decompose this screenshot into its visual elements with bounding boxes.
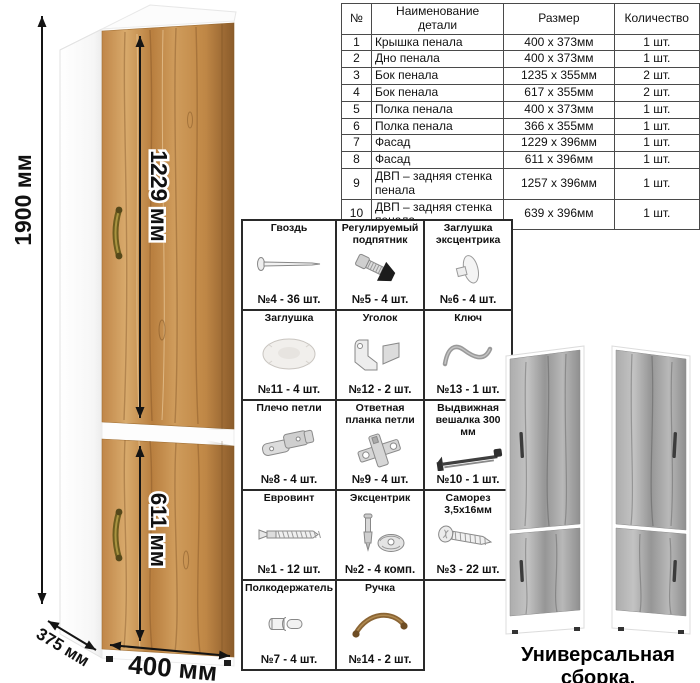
part-size: 639 x 396мм: [504, 199, 614, 230]
hardware-item: Ответная планка петли №9 - 4 шт.: [339, 403, 421, 487]
hardware-title: Ответная планка петли: [339, 403, 421, 427]
part-qty: 1 шт.: [614, 34, 699, 51]
part-size: 366 x 355мм: [504, 118, 614, 135]
nail-icon: [256, 235, 322, 294]
hardware-count: №4 - 36 шт.: [258, 294, 321, 307]
hinge-arm-icon: [258, 415, 320, 474]
hardware-title: Полкодержатель: [245, 583, 333, 595]
hardware-count: №12 - 2 шт.: [349, 384, 412, 397]
hardware-count: №5 - 4 шт.: [352, 294, 408, 307]
hardware-count: №11 - 4 шт.: [258, 384, 320, 397]
variant-cabinet-right: [612, 346, 690, 634]
hardware-item: Заглушка №11 - 4 шт.: [245, 313, 333, 397]
part-size: 1257 x 396мм: [504, 168, 614, 199]
part-name: Бок пенала: [371, 68, 503, 85]
hardware-title: Регулируемый подпятник: [339, 223, 421, 247]
hardware-item: Регулируемый подпятник №5 - 4 шт.: [339, 223, 421, 307]
hardware-count: №9 - 4 шт.: [352, 474, 408, 487]
part-size: 400 x 373мм: [504, 101, 614, 118]
header-size: Размер: [504, 4, 614, 35]
variant-cabinets: [496, 338, 700, 644]
table-row: 5Полка пенала400 x 373мм1 шт.: [342, 101, 700, 118]
part-num: 8: [342, 152, 372, 169]
table-row: 4Бок пенала617 x 355мм2 шт.: [342, 84, 700, 101]
hardware-item: Уголок №12 - 2 шт.: [339, 313, 421, 397]
hardware-item: Гвоздь №4 - 36 шт.: [245, 223, 333, 307]
hardware-title: Ручка: [365, 583, 395, 595]
cabinet-foot: [106, 656, 113, 662]
part-num: 5: [342, 101, 372, 118]
part-qty: 1 шт.: [614, 135, 699, 152]
hardware-item: Полкодержатель №7 - 4 шт.: [245, 583, 333, 667]
part-size: 400 x 373мм: [504, 34, 614, 51]
part-size: 617 x 355мм: [504, 84, 614, 101]
hardware-count: №13 - 1 шт.: [437, 384, 500, 397]
cam-lock-icon: [351, 505, 409, 564]
hardware-title: Эксцентрик: [350, 493, 410, 505]
hardware-count: №10 - 1 шт.: [437, 474, 500, 487]
hex-key-icon: [439, 325, 497, 384]
part-size: 1229 x 396мм: [504, 135, 614, 152]
header-name: Наименование детали: [371, 4, 503, 35]
part-size: 611 x 396мм: [504, 152, 614, 169]
part-num: 3: [342, 68, 372, 85]
table-row: 3Бок пенала1235 x 355мм2 шт.: [342, 68, 700, 85]
table-row: 9ДВП – задняя стенка пенала1257 x 396мм1…: [342, 168, 700, 199]
header-num: №: [342, 4, 372, 35]
parts-table: № Наименование детали Размер Количество …: [341, 3, 700, 230]
part-num: 9: [342, 168, 372, 199]
table-row: 8Фасад611 x 396мм1 шт.: [342, 152, 700, 169]
corner-bracket-icon: [351, 325, 409, 384]
hinge-plate-icon: [353, 427, 407, 475]
plug-cap-icon: [260, 325, 318, 384]
pullout-hanger-icon: [432, 438, 504, 474]
cabinet-side-panel: [60, 29, 102, 658]
shelf-pin-icon: [266, 595, 312, 654]
part-num: 7: [342, 135, 372, 152]
hardware-item: Плечо петли №8 - 4 шт.: [245, 403, 333, 487]
hardware-count: №8 - 4 шт.: [261, 474, 317, 487]
cam-cover-icon: [447, 247, 489, 295]
dimension-lower-door-label: 611 мм: [146, 493, 171, 567]
part-num: 2: [342, 51, 372, 68]
hardware-title: Гвоздь: [271, 223, 308, 235]
cabinet-foot: [224, 660, 231, 666]
part-size: 400 x 373мм: [504, 51, 614, 68]
part-name: Бок пенала: [371, 84, 503, 101]
hardware-item: Эксцентрик №2 - 4 комп.: [339, 493, 421, 577]
part-name: Крышка пенала: [371, 34, 503, 51]
hardware-title: Заглушка: [265, 313, 314, 325]
part-name: Фасад: [371, 135, 503, 152]
variants-caption: Универсальная сборка.: [486, 644, 700, 683]
handle-icon: [347, 595, 413, 654]
part-qty: 1 шт.: [614, 168, 699, 199]
table-row: 6Полка пенала366 x 355мм1 шт.: [342, 118, 700, 135]
part-name: Полка пенала: [371, 101, 503, 118]
hardware-title: Уголок: [363, 313, 398, 325]
table-row: 1Крышка пенала400 x 373мм1 шт.: [342, 34, 700, 51]
hardware-item: Ручка №14 - 2 шт.: [339, 583, 421, 667]
part-name: Полка пенала: [371, 118, 503, 135]
hardware-count: №7 - 4 шт.: [261, 654, 317, 667]
part-qty: 2 шт.: [614, 84, 699, 101]
table-row: 7Фасад1229 x 396мм1 шт.: [342, 135, 700, 152]
cabinet-drawing: 1900 мм 1229 мм 611 мм 375 мм 400 мм: [0, 0, 240, 683]
adjustable-foot-icon: [352, 247, 408, 295]
hardware-count: №3 - 22 шт.: [437, 564, 500, 577]
hardware-grid: Гвоздь №4 - 36 шт. Регулируемый подпятни…: [241, 219, 513, 671]
hardware-count: №14 - 2 шт.: [349, 654, 412, 667]
header-qty: Количество: [614, 4, 699, 35]
part-name: Фасад: [371, 152, 503, 169]
part-num: 6: [342, 118, 372, 135]
hardware-count: №2 - 4 комп.: [345, 564, 415, 577]
hardware-count: №1 - 12 шт.: [258, 564, 321, 577]
dimension-upper-door-label: 1229 мм: [146, 150, 172, 242]
parts-table-header: № Наименование детали Размер Количество: [342, 4, 700, 35]
variant-cabinet-left: [506, 346, 584, 634]
part-qty: 1 шт.: [614, 199, 699, 230]
part-qty: 1 шт.: [614, 118, 699, 135]
euro-screw-icon: [255, 505, 323, 564]
part-name: Дно пенала: [371, 51, 503, 68]
hardware-item: Заглушка эксцентрика №6 - 4 шт.: [427, 223, 509, 307]
part-num: 4: [342, 84, 372, 101]
part-size: 1235 x 355мм: [504, 68, 614, 85]
hardware-title: Евровинт: [264, 493, 315, 505]
hardware-count: №6 - 4 шт.: [440, 294, 496, 307]
part-num: 1: [342, 34, 372, 51]
table-row: 2Дно пенала400 x 373мм1 шт.: [342, 51, 700, 68]
part-qty: 1 шт.: [614, 51, 699, 68]
assembly-diagram-page: 1900 мм 1229 мм 611 мм 375 мм 400 мм № Н…: [0, 0, 700, 683]
hardware-item: Евровинт №1 - 12 шт.: [245, 493, 333, 577]
part-qty: 1 шт.: [614, 101, 699, 118]
self-tapping-screw-icon: [436, 517, 500, 565]
hardware-title: Заглушка эксцентрика: [427, 223, 509, 247]
hardware-title: Ключ: [454, 313, 482, 325]
part-qty: 1 шт.: [614, 152, 699, 169]
part-qty: 2 шт.: [614, 68, 699, 85]
dimension-height-label: 1900 мм: [10, 154, 36, 246]
hardware-title: Плечо петли: [256, 403, 321, 415]
part-name: ДВП – задняя стенка пенала: [371, 168, 503, 199]
